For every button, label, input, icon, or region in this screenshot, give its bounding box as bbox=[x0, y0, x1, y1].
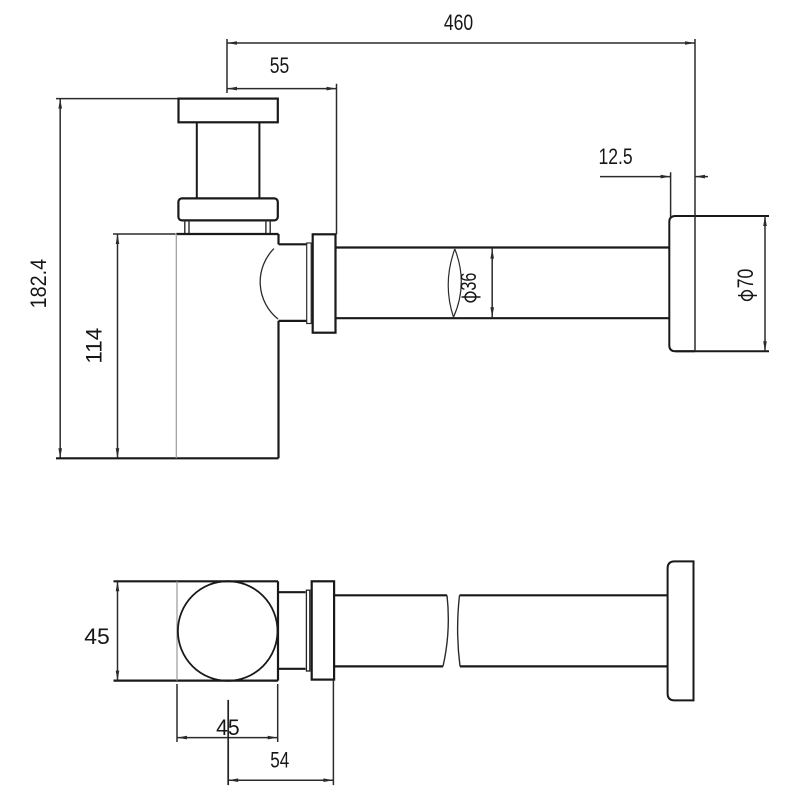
svg-text:36: 36 bbox=[456, 273, 481, 291]
svg-text:182.4: 182.4 bbox=[27, 259, 51, 309]
svg-text:55: 55 bbox=[270, 54, 290, 79]
svg-text:45: 45 bbox=[84, 623, 110, 649]
svg-text:54: 54 bbox=[270, 748, 289, 773]
svg-text:12.5: 12.5 bbox=[598, 145, 632, 170]
svg-text:70: 70 bbox=[734, 269, 759, 289]
svg-text:460: 460 bbox=[444, 11, 473, 36]
svg-text:114: 114 bbox=[82, 328, 107, 364]
